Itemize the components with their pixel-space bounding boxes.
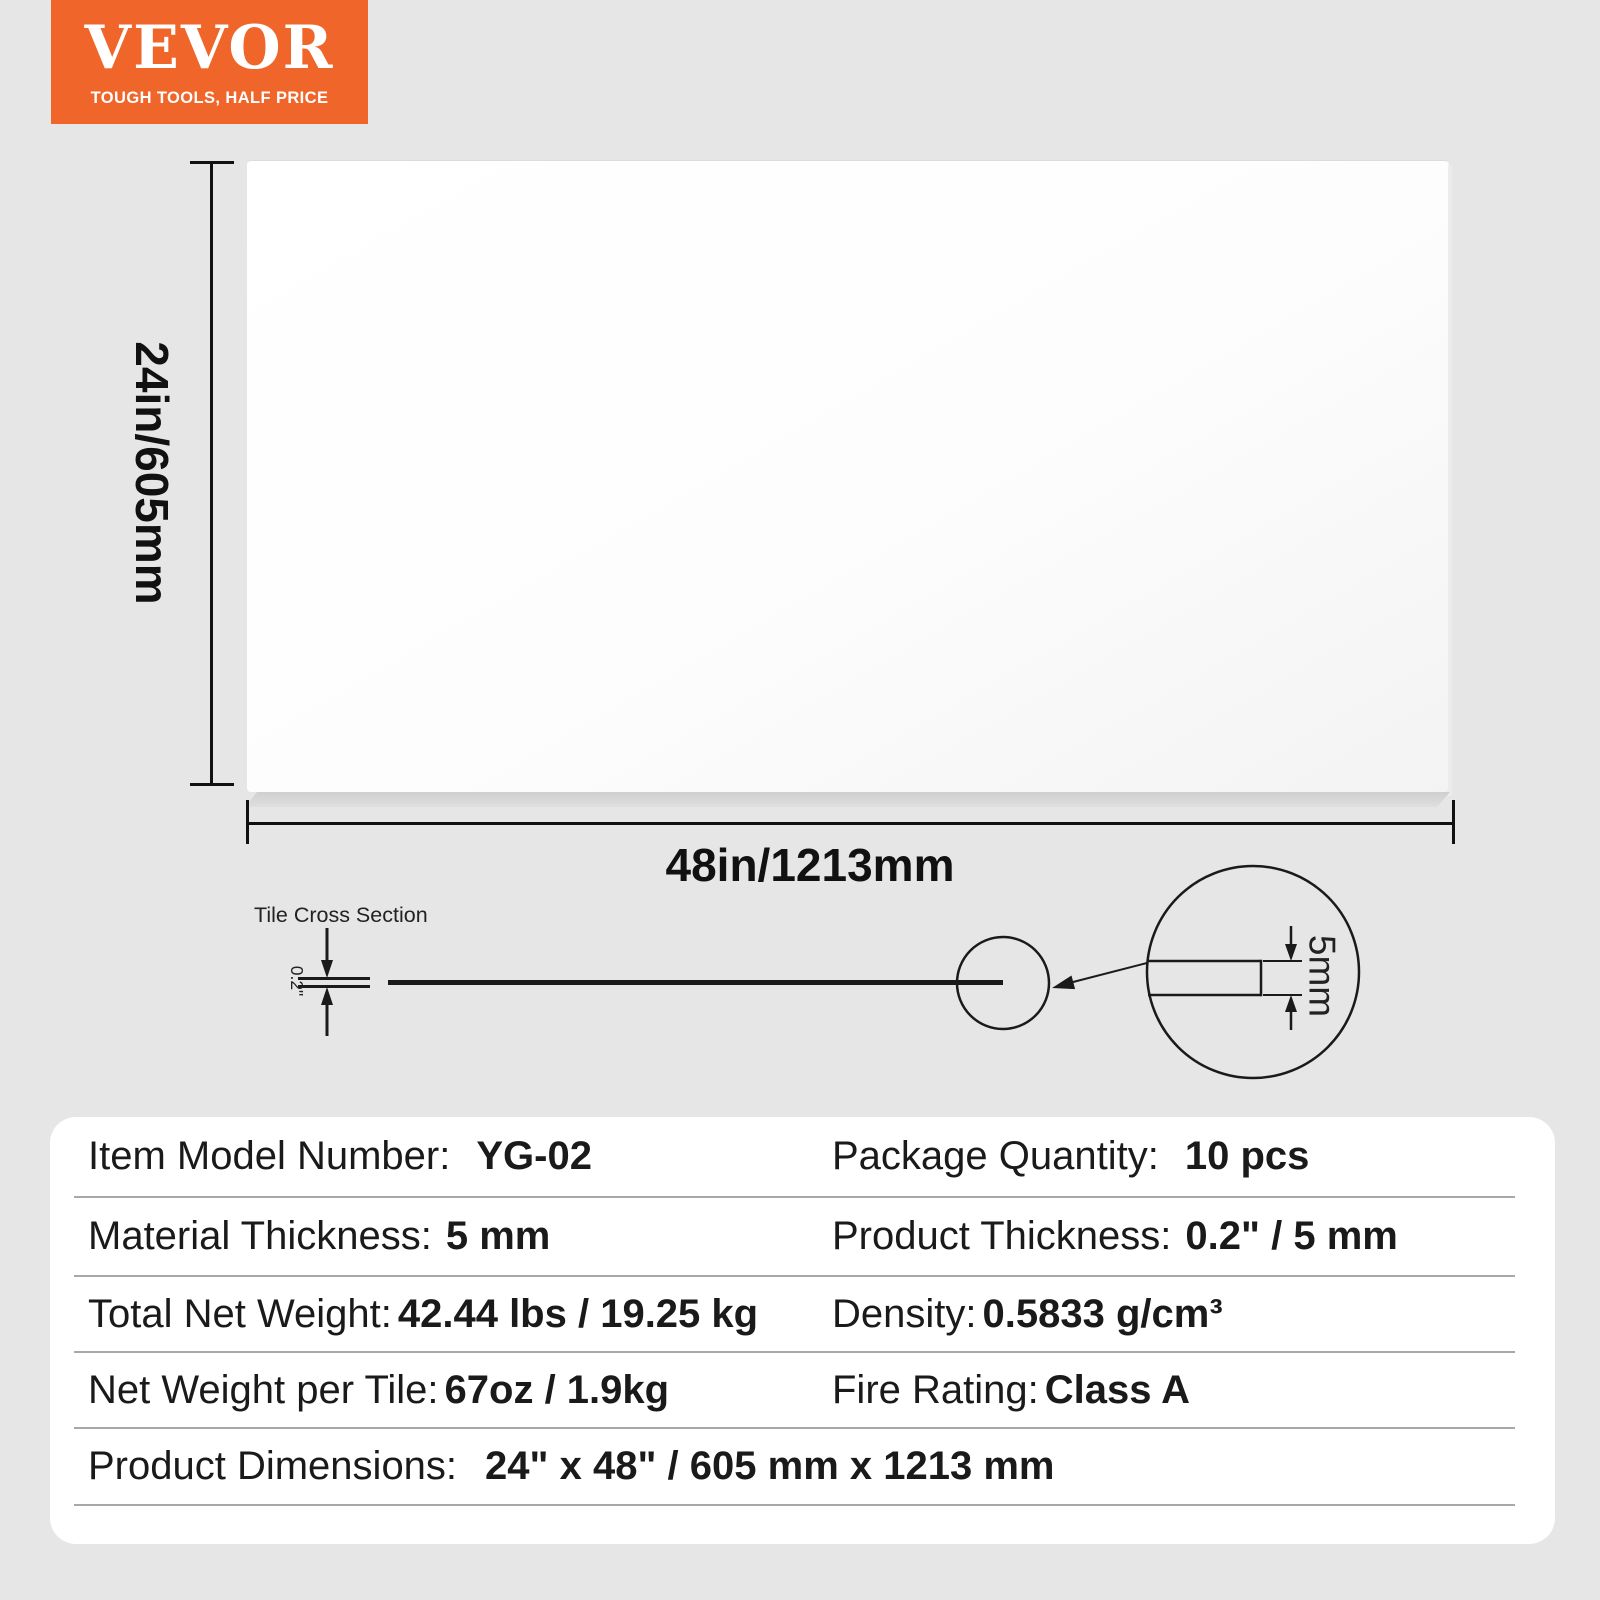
spec-cell-net-weight-per-tile: Net Weight per Tile: 67oz / 1.9kg	[88, 1368, 832, 1413]
mm-arrowhead-down-icon	[1285, 944, 1297, 961]
total-net-weight-value: 42.44 lbs / 19.25 kg	[398, 1292, 758, 1337]
spec-cell-item-model: Item Model Number: YG-02	[88, 1134, 832, 1179]
thickness-arrowhead-down-icon	[321, 960, 333, 978]
thickness-mm-label: 5mm	[1302, 935, 1343, 1017]
mm-arrowhead-up-icon	[1285, 995, 1297, 1012]
thickness-inch-label: 0.2"	[287, 966, 307, 997]
spec-cell-material-thickness: Material Thickness: 5 mm	[88, 1214, 832, 1259]
material-thickness-value: 5 mm	[446, 1214, 551, 1259]
package-quantity-label: Package Quantity:	[832, 1134, 1159, 1179]
spec-cell-package-quantity: Package Quantity: 10 pcs	[832, 1134, 1515, 1179]
package-quantity-value: 10 pcs	[1185, 1134, 1310, 1179]
spec-cell-density: Density: 0.5833 g/cm³	[832, 1292, 1515, 1337]
spec-row-model-quantity: Item Model Number: YG-02 Package Quantit…	[74, 1117, 1515, 1198]
product-dimensions-value: 24" x 48" / 605 mm x 1213 mm	[485, 1444, 1054, 1489]
spec-row-tile-weight-fire: Net Weight per Tile: 67oz / 1.9kg Fire R…	[74, 1353, 1515, 1429]
spec-cell-product-dimensions: Product Dimensions: 24" x 48" / 605 mm x…	[88, 1444, 1054, 1489]
spec-cell-product-thickness: Product Thickness: 0.2" / 5 mm	[832, 1214, 1515, 1259]
material-thickness-label: Material Thickness:	[88, 1214, 432, 1259]
leader-arrowhead-icon	[1052, 976, 1075, 990]
thickness-arrowhead-up-icon	[321, 987, 333, 1005]
net-weight-per-tile-label: Net Weight per Tile:	[88, 1368, 439, 1413]
fire-rating-value: Class A	[1045, 1368, 1190, 1413]
product-thickness-value: 0.2" / 5 mm	[1185, 1214, 1397, 1259]
item-model-value: YG-02	[476, 1134, 592, 1179]
leader-line	[1073, 963, 1147, 982]
spec-row-weight-density: Total Net Weight: 42.44 lbs / 19.25 kg D…	[74, 1277, 1515, 1353]
fire-rating-label: Fire Rating:	[832, 1368, 1039, 1413]
density-value: 0.5833 g/cm³	[983, 1292, 1223, 1337]
spec-cell-total-net-weight: Total Net Weight: 42.44 lbs / 19.25 kg	[88, 1292, 832, 1337]
spec-cell-fire-rating: Fire Rating: Class A	[832, 1368, 1515, 1413]
spec-row-thickness: Material Thickness: 5 mm Product Thickne…	[74, 1198, 1515, 1277]
spec-panel: Item Model Number: YG-02 Package Quantit…	[50, 1117, 1555, 1544]
product-thickness-label: Product Thickness:	[832, 1214, 1171, 1259]
total-net-weight-label: Total Net Weight:	[88, 1292, 392, 1337]
cross-section-title: Tile Cross Section	[254, 903, 428, 927]
item-model-label: Item Model Number:	[88, 1134, 450, 1179]
net-weight-per-tile-value: 67oz / 1.9kg	[445, 1368, 670, 1413]
density-label: Density:	[832, 1292, 977, 1337]
product-spec-infographic: VEVOR TOUGH TOOLS, HALF PRICE 24in/605mm…	[0, 0, 1600, 1600]
spec-row-dimensions: Product Dimensions: 24" x 48" / 605 mm x…	[74, 1429, 1515, 1506]
product-dimensions-label: Product Dimensions:	[88, 1444, 457, 1489]
